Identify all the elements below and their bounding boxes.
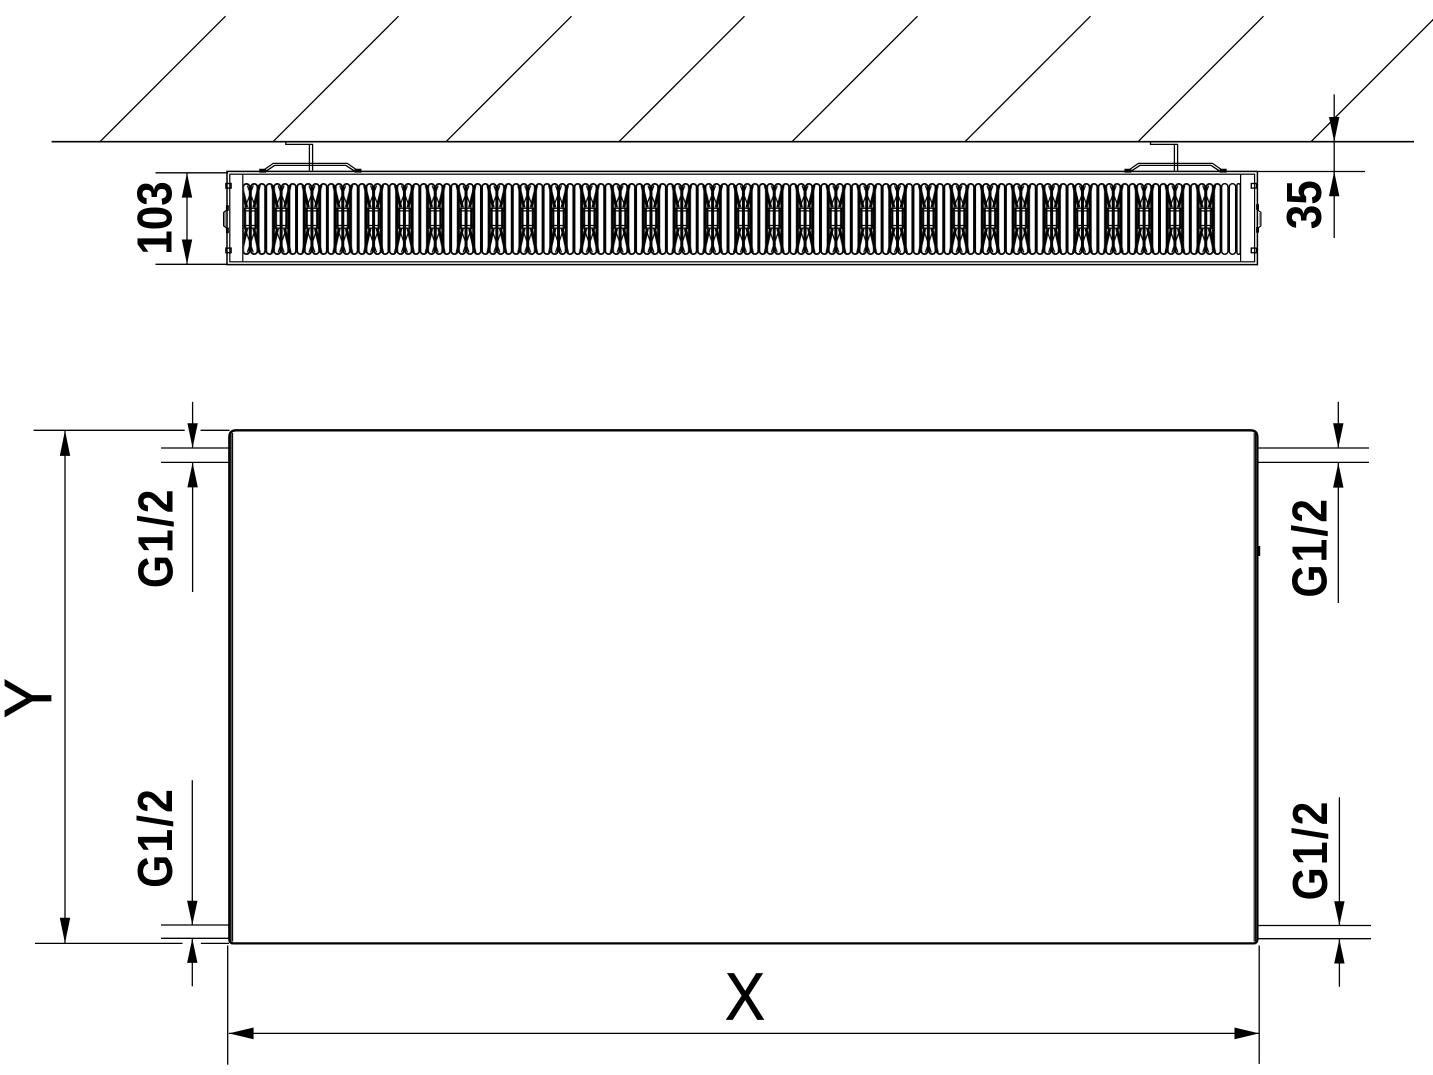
svg-text:G1/2: G1/2	[127, 787, 182, 888]
svg-text:35: 35	[1277, 180, 1332, 229]
svg-text:G1/2: G1/2	[1282, 497, 1337, 598]
svg-text:X: X	[725, 960, 765, 1034]
svg-text:103: 103	[127, 181, 182, 255]
svg-text:Y: Y	[0, 678, 66, 718]
svg-text:G1/2: G1/2	[1282, 800, 1337, 901]
svg-text:G1/2: G1/2	[128, 487, 183, 588]
